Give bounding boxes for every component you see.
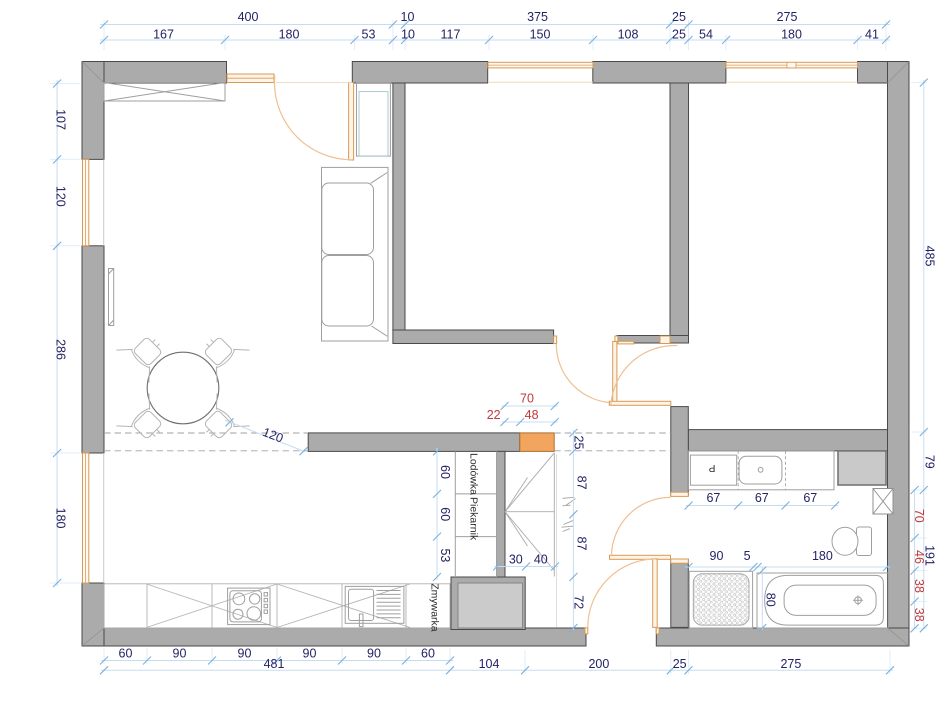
svg-text:60: 60 (438, 507, 452, 521)
svg-text:180: 180 (812, 549, 833, 563)
svg-text:107: 107 (54, 109, 68, 130)
svg-text:200: 200 (588, 657, 609, 671)
svg-text:5: 5 (744, 549, 751, 563)
svg-text:22: 22 (487, 408, 501, 422)
svg-text:90: 90 (238, 647, 252, 661)
svg-text:191: 191 (923, 545, 937, 566)
svg-text:30: 30 (509, 553, 523, 567)
svg-text:167: 167 (153, 28, 174, 42)
svg-text:60: 60 (421, 647, 435, 661)
svg-text:150: 150 (530, 28, 551, 42)
svg-text:40: 40 (534, 553, 548, 567)
svg-text:80: 80 (764, 593, 778, 607)
svg-text:38: 38 (912, 608, 926, 622)
svg-text:120: 120 (54, 186, 68, 207)
svg-text:180: 180 (781, 28, 802, 42)
svg-text:53: 53 (438, 548, 452, 562)
svg-text:54: 54 (699, 28, 713, 42)
svg-text:70: 70 (520, 392, 534, 406)
svg-text:60: 60 (119, 647, 133, 661)
svg-text:P: P (708, 462, 715, 473)
svg-text:87: 87 (575, 476, 589, 490)
svg-text:180: 180 (279, 28, 300, 42)
svg-text:38: 38 (912, 579, 926, 593)
svg-text:25: 25 (672, 28, 686, 42)
svg-text:10: 10 (401, 28, 415, 42)
svg-text:87: 87 (575, 537, 589, 551)
svg-text:90: 90 (173, 647, 187, 661)
svg-text:Piekarnik: Piekarnik (468, 497, 480, 541)
svg-text:10: 10 (401, 10, 415, 24)
svg-text:90: 90 (710, 549, 724, 563)
svg-text:41: 41 (865, 28, 879, 42)
svg-text:275: 275 (780, 657, 801, 671)
svg-text:375: 375 (527, 10, 548, 24)
svg-text:286: 286 (54, 339, 68, 360)
svg-text:25: 25 (673, 657, 687, 671)
svg-text:108: 108 (618, 28, 639, 42)
svg-text:117: 117 (441, 28, 461, 42)
svg-text:67: 67 (755, 491, 769, 505)
svg-text:275: 275 (777, 10, 798, 24)
svg-text:481: 481 (264, 657, 285, 671)
svg-text:25: 25 (572, 436, 586, 450)
svg-text:25: 25 (672, 10, 686, 24)
svg-text:72: 72 (572, 595, 586, 609)
svg-text:79: 79 (923, 455, 937, 469)
svg-text:400: 400 (238, 10, 259, 24)
svg-text:67: 67 (706, 491, 720, 505)
svg-text:48: 48 (525, 408, 539, 422)
svg-text:67: 67 (803, 491, 817, 505)
svg-text:180: 180 (54, 508, 68, 529)
svg-text:70: 70 (912, 509, 926, 523)
svg-text:Lodówka: Lodówka (468, 453, 480, 495)
svg-text:60: 60 (438, 465, 452, 479)
svg-text:53: 53 (362, 28, 376, 42)
svg-text:485: 485 (923, 246, 937, 267)
svg-text:Zmywarka: Zmywarka (429, 583, 441, 632)
svg-text:90: 90 (367, 647, 381, 661)
svg-text:90: 90 (303, 647, 317, 661)
svg-text:104: 104 (479, 657, 500, 671)
